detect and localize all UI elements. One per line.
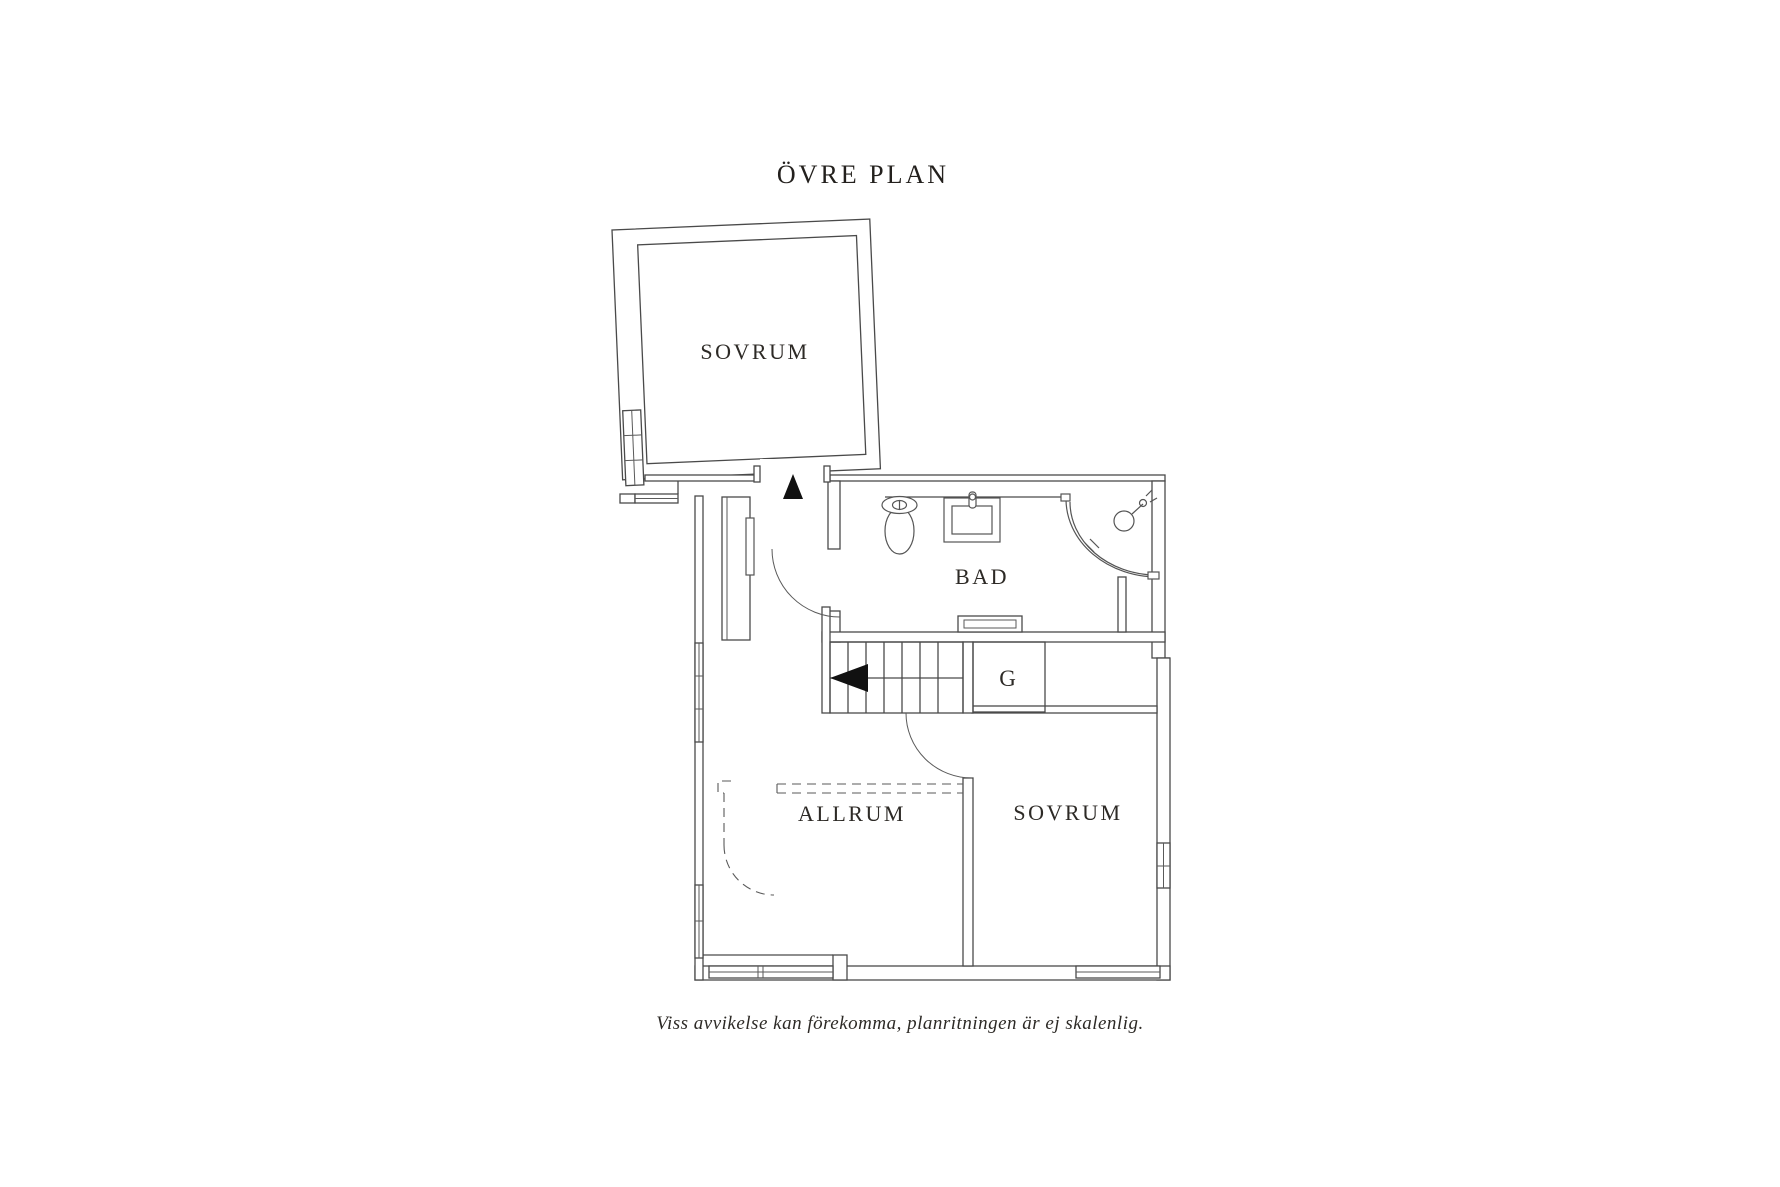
window [695, 885, 703, 958]
window [695, 643, 703, 742]
window [1076, 966, 1160, 978]
sink-icon [944, 492, 1000, 542]
wall [828, 481, 840, 549]
window [623, 410, 644, 486]
wall [822, 632, 1165, 642]
wall [830, 475, 1165, 481]
doors [754, 466, 972, 778]
room-label-allrum: ALLRUM [798, 801, 906, 826]
room-label-sovrum-upper: SOVRUM [700, 339, 809, 364]
wall [833, 955, 847, 980]
stair-direction-arrow-icon [830, 664, 868, 692]
door-leaf [746, 518, 754, 575]
wall [1157, 658, 1170, 980]
staircase [830, 642, 963, 713]
dashed-ceiling-lines [718, 781, 963, 895]
room-label-sovrum-lower: SOVRUM [1013, 800, 1122, 825]
door-jamb [824, 466, 830, 482]
window [635, 494, 678, 503]
interior-walls [722, 481, 1165, 966]
floor-plan-canvas: ÖVRE PLAN SOVRUM BAD G ALLRUM SOVRUM Vis… [0, 0, 1780, 1187]
room-label-garderob: G [999, 666, 1017, 691]
room-label-bad: BAD [955, 564, 1009, 589]
disclaimer-caption: Viss avvikelse kan förekomma, planritnin… [656, 1013, 1143, 1034]
wall [620, 494, 635, 503]
window [1157, 843, 1170, 888]
floor-plan-page: ÖVRE PLAN SOVRUM BAD G ALLRUM SOVRUM Vis… [0, 0, 1780, 1187]
wall [963, 778, 973, 966]
shower-icon [1061, 490, 1159, 579]
wall [1118, 577, 1126, 632]
wall [822, 607, 830, 713]
page-title: ÖVRE PLAN [777, 160, 949, 189]
hall-closet [722, 497, 754, 640]
door-arc [906, 713, 972, 778]
bathroom-niche [958, 616, 1022, 632]
toilet-icon [882, 497, 917, 555]
window [709, 966, 833, 978]
wall [963, 642, 973, 713]
wall [645, 475, 755, 481]
door-jamb [754, 466, 760, 482]
dashed-door-arc [724, 845, 774, 895]
windows [635, 494, 1170, 978]
